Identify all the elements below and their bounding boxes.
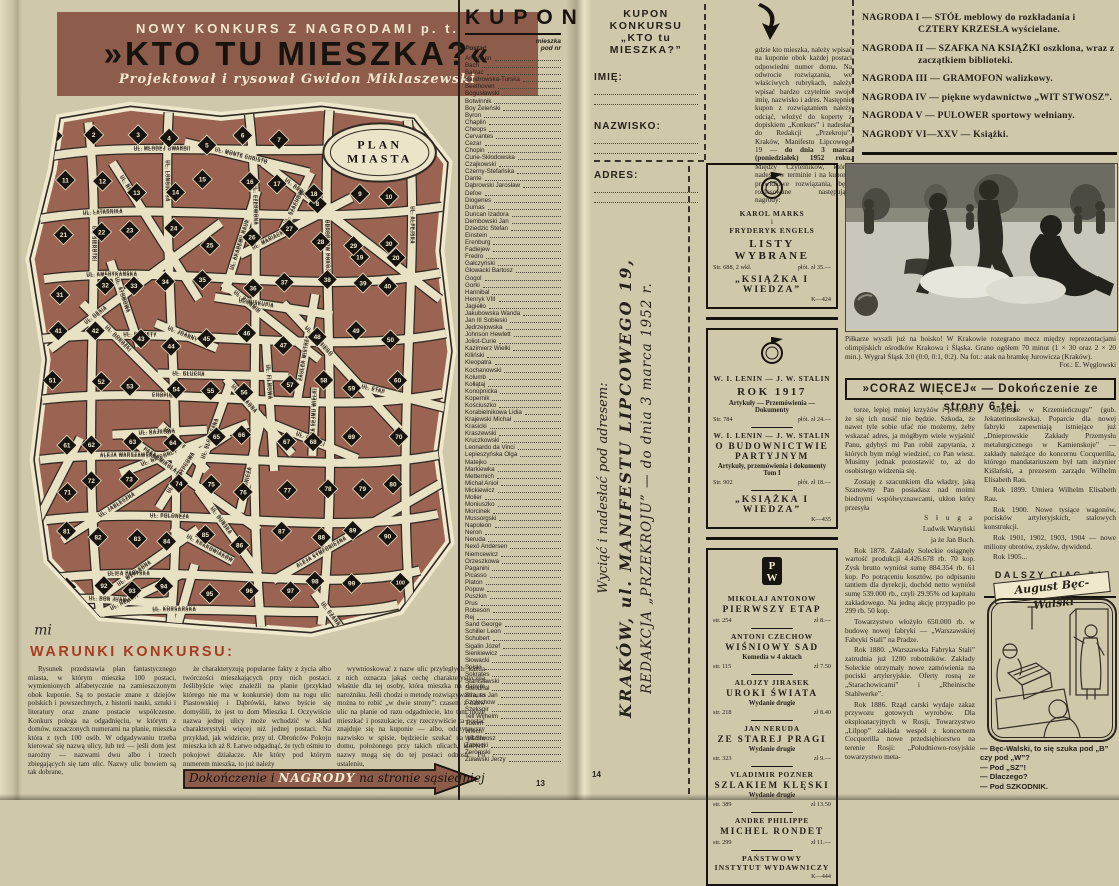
coupon-row: Moniuszko — [465, 501, 563, 508]
ad-meta-right: zł 11.— — [811, 839, 831, 846]
dot-leader — [499, 435, 561, 436]
dot-leader — [502, 683, 561, 684]
map-label-line1: PLAN — [357, 137, 402, 151]
coupon-name: Prus — [465, 600, 478, 607]
coupon-name: Curie-Skłodowska — [465, 154, 515, 161]
cut-line-vertical-right — [852, 0, 854, 162]
coupon-row: Kleopatra — [465, 359, 563, 366]
coupon-row: Johnson Hewlett — [465, 331, 563, 338]
ad-line: VLADIMIR POZNER — [713, 770, 831, 779]
ad-sub: Artykuły — Przemówienia — Dokumenty — [713, 400, 831, 414]
coupon-name: Defoe — [465, 190, 482, 197]
coupon-name: Johnson Hewlett — [465, 331, 511, 338]
comic-panel-inner — [991, 602, 1113, 738]
dot-leader — [481, 605, 561, 606]
ad-footer2: PAŃSTWOWY — [713, 854, 831, 863]
dot-leader — [485, 733, 561, 734]
prize-item: NAGRODA I — STÓŁ meblowy do rozkładania … — [862, 12, 1117, 36]
dot-leader — [498, 471, 561, 472]
coupon-row: Puszkin — [465, 593, 563, 600]
coupon-name: Stendhal — [465, 685, 489, 692]
contest-instructions: gdzie kto mieszka, należy wpisać na kupo… — [755, 46, 852, 164]
dot-leader — [512, 216, 561, 217]
house-number: 83 — [134, 536, 142, 543]
prize-item: NAGRODY VI—XXV — Książki. — [862, 129, 1117, 141]
street-name-label: UL. GŁUCHA — [172, 371, 205, 377]
coupon-form-title-1: KUPON KONKURSU — [594, 8, 698, 32]
dot-leader — [484, 117, 561, 118]
coupon-row: Dziedzic Stefan — [465, 225, 563, 232]
street-name-label: UL. MŁODEJ GWARDII — [134, 146, 191, 151]
prize-list: NAGRODA I — STÓŁ meblowy do rozkładania … — [862, 12, 1117, 147]
article-paragraph: Towarzystwo włożyło 650.000 rb. w budowę… — [845, 618, 975, 644]
dot-leader — [492, 690, 561, 691]
dot-leader — [487, 74, 561, 75]
coupon-name: Czerny-Stefańska — [465, 168, 514, 175]
house-number: 8 — [316, 201, 320, 208]
dot-leader — [485, 280, 561, 281]
coupon-title-rule — [465, 33, 561, 35]
scan-left-edge — [0, 0, 22, 800]
ad-small: i — [713, 218, 831, 226]
coupon-form-title-2: „KTO tu MIESZKA?” — [594, 32, 698, 56]
coupon-row: Hannibal — [465, 289, 563, 296]
ad-divider — [751, 850, 793, 851]
coupon-form-field: IMIĘ: — [594, 67, 698, 105]
coupon-row: Lepieszyńska Olga — [465, 451, 563, 458]
coupon-name: Nexö Andersen — [465, 543, 507, 550]
coupon-row: Chaplin — [465, 119, 563, 126]
dot-leader — [487, 591, 561, 592]
house-number: 51 — [49, 378, 57, 385]
coupon-name-list: AndersenBachBalzacBandrowska-TurskaBeeth… — [465, 55, 563, 763]
house-number: 82 — [94, 534, 102, 541]
prize-item: NAGRODA II — SZAFKA NA KSIĄŻKI oszklona,… — [862, 43, 1117, 67]
coupon-name: Strauss Jan — [465, 692, 498, 699]
house-number: 77 — [284, 487, 292, 494]
house-number: 28 — [317, 239, 325, 246]
dot-leader — [498, 265, 561, 266]
house-number: 12 — [99, 178, 107, 185]
coupon-row: Picasso — [465, 572, 563, 579]
dot-leader — [501, 556, 561, 557]
ad-divider — [751, 720, 793, 721]
house-number: 75 — [208, 482, 216, 489]
dot-leader — [489, 124, 561, 125]
coupon-name: Paganini — [465, 565, 489, 572]
coupon-row: Sand George — [465, 621, 563, 628]
coupon-row: Defoe — [465, 189, 563, 196]
house-number: 71 — [64, 490, 72, 497]
coupon-row: Kościuszko — [465, 402, 563, 409]
ad-title2: SZLAKIEM KLĘSKI — [713, 781, 831, 791]
coupon-row: Żeromski — [465, 749, 563, 756]
house-number: 53 — [126, 384, 134, 391]
coupon-name: Krasicki — [465, 423, 487, 430]
coupon-row: Solski — [465, 664, 563, 671]
house-number: 48 — [314, 334, 322, 341]
house-number: 47 — [280, 343, 288, 350]
dot-leader — [493, 640, 561, 641]
coupon-name: Morcinek — [465, 508, 490, 515]
coupon-name: Cheops — [465, 126, 486, 133]
dot-leader — [490, 464, 561, 465]
house-number: 60 — [394, 378, 402, 385]
ad-title2: MICHEL RONDET — [713, 827, 831, 837]
ad-line: W. I. LENIN — J. W. STALIN — [713, 374, 831, 383]
coupon-row: Orzeszkowa — [465, 558, 563, 565]
ad-meta-right: zł 7.50 — [814, 663, 831, 670]
coupon-row: Dante — [465, 175, 563, 182]
house-number: 94 — [160, 583, 168, 590]
coupon-title: KUPON — [465, 6, 567, 30]
dot-leader — [511, 230, 561, 231]
coupon-row: Prus — [465, 600, 563, 607]
house-number: 14 — [172, 190, 180, 197]
house-number: 93 — [128, 588, 136, 595]
dot-leader — [518, 159, 561, 160]
house-number: 35 — [199, 277, 207, 284]
house-number: 76 — [240, 489, 248, 496]
house-number: 52 — [98, 379, 106, 386]
dot-leader — [501, 718, 561, 719]
coupon-row: Sokrates — [465, 671, 563, 678]
ad-meta-left: str. 218 — [713, 709, 732, 716]
coupon-row: Rej — [465, 614, 563, 621]
street-name: UL. ALPEJSKA — [409, 206, 414, 244]
ad-divider — [751, 628, 793, 629]
ad-footer: „KSIĄŻKA I WIEDZA” — [713, 275, 831, 295]
house-number: 24 — [170, 225, 178, 232]
coupon-name: Lepieszyńska Olga — [465, 451, 517, 458]
house-number: 59 — [348, 385, 356, 392]
coupon-form-dotline — [594, 144, 698, 154]
coupon-row: Zabłocki — [465, 742, 563, 749]
coupon-col-number-l1: mieszka — [536, 38, 561, 45]
house-number: 63 — [129, 439, 137, 446]
coupon-row: Szekspir — [465, 706, 563, 713]
coupon-name: Kopernik — [465, 395, 489, 402]
house-number: 43 — [137, 336, 145, 343]
instructions-pre: gdzie kto mieszka, należy wpisać na kupo… — [755, 46, 852, 154]
ad-meta-right: płót. zł 18.— — [798, 479, 831, 486]
ad-meta-right: zł 8.— — [814, 617, 831, 624]
article-paragraph: Zostaję z szacunkiem dla władzy, jaką Sz… — [845, 478, 975, 513]
coupon-name: Kołłątaj — [465, 381, 485, 388]
coupon-row: Michał Anioł — [465, 480, 563, 487]
continued-banner-text: Dokończenie i NAGRODY na stronie sąsiedn… — [189, 771, 437, 785]
ad-title: ROK 1917 — [713, 386, 831, 398]
banner-pre: Dokończenie i — [189, 771, 278, 785]
photo-caption-text: Piłkarze wyszli już na boisko! W Krakowi… — [845, 334, 1116, 361]
ad-meta-row: str. 389zł 13.50 — [713, 801, 831, 808]
coupon-form-dotline — [594, 95, 698, 105]
dot-leader — [520, 456, 561, 457]
ad-line: W. I. LENIN — J. W. STALIN — [713, 431, 831, 440]
coupon-name: Bogusławski — [465, 90, 499, 97]
coupon-name: Schubert — [465, 635, 490, 642]
book-ad-piw-books: PWMIKOŁAJ ANTONOWPIERWSZY ETAPstr. 254zł… — [706, 548, 838, 886]
dot-leader — [477, 619, 561, 620]
coupon-name: Gorki — [465, 282, 480, 289]
street-name: UL. MŁODEJ GWARDII — [134, 146, 191, 151]
coupon-name: Boy Żeleński — [465, 105, 500, 112]
dot-leader — [493, 612, 561, 613]
coupon-row: Niemcewicz — [465, 550, 563, 557]
coupon-row: Kochanowski — [465, 366, 563, 373]
football-photo — [845, 163, 1118, 332]
dot-leader — [498, 704, 561, 705]
house-number: 90 — [384, 534, 392, 541]
dot-leader — [483, 287, 561, 288]
article-paragraph: Rok 1886. Rząd carski wydaje zakaz przyw… — [845, 701, 975, 762]
coupon-form-field: NAZWISKO: — [594, 116, 698, 154]
coupon-name: Solski — [465, 664, 482, 671]
dot-leader — [502, 563, 561, 564]
coupon-name: Andersen — [465, 55, 492, 62]
coupon-name: Hannibal — [465, 289, 489, 296]
house-number: 86 — [236, 543, 244, 550]
dot-leader — [485, 180, 561, 181]
coupon-row: Duncan Izadora — [465, 211, 563, 218]
dot-leader — [501, 697, 561, 698]
cut-line-horizontal — [594, 160, 704, 162]
dot-leader — [499, 740, 561, 741]
dot-leader — [503, 648, 561, 649]
house-number: 70 — [395, 434, 403, 441]
ad-code: K—435 — [713, 516, 831, 523]
ad-divider — [751, 766, 793, 767]
coupon-row: Schiller Leon — [465, 628, 563, 635]
coupon-name: Jakubowska Wanda — [465, 310, 520, 317]
coupon-name: Dante — [465, 175, 482, 182]
coupon-row: Dąbrowski Jarosław — [465, 182, 563, 189]
coupon-row: Diogenes — [465, 197, 563, 204]
comic-illustration — [992, 603, 1112, 737]
coupon-name: Słowacki — [465, 657, 489, 664]
coupon-row: Krasicki — [465, 423, 563, 430]
coupon-row: Kolumb — [465, 374, 563, 381]
coupon-form-dotline — [594, 134, 698, 144]
house-number: 57 — [286, 382, 294, 389]
cut-note-line3: REDAKCJA „PRZEKROJU” — do dnia 3 marca 1… — [639, 168, 655, 808]
ad-separator — [706, 317, 838, 320]
book-ad-kiw-lenin-stalin: W. I. LENIN — J. W. STALINROK 1917Artyku… — [706, 328, 838, 529]
house-number: 26 — [248, 235, 256, 242]
kiw-badge-icon — [713, 336, 831, 371]
dot-leader — [499, 166, 561, 167]
coupon-name: Kolumb — [465, 374, 486, 381]
ad-meta-right: zł 8.40 — [814, 709, 831, 716]
coupon-row: Cheops — [465, 126, 563, 133]
coupon-name: Jagiełło — [465, 303, 486, 310]
house-number: 25 — [206, 243, 214, 250]
rules-text-3: wywnioskować z nazw ulic przyległych: ka… — [337, 665, 485, 768]
map-label-line2: MIASTA — [347, 152, 412, 166]
house-number: 98 — [311, 578, 319, 585]
coupon-name: Leonardo da Vinci — [465, 444, 515, 451]
piw-monogram-icon: PW — [713, 556, 831, 591]
dot-leader — [503, 110, 561, 111]
coupon-row: Szołochow — [465, 699, 563, 706]
prize-item: NAGRODA III — GRAMOFON walizkowy. — [862, 73, 1117, 85]
house-number: 10 — [385, 194, 393, 201]
map-label-group: PLANMIASTA — [323, 123, 436, 181]
ad-sub: Artykuły, przemówienia i dokumenty — [713, 463, 831, 470]
signature-line: ja że Jan Buch. — [845, 536, 975, 545]
house-number: 64 — [169, 440, 177, 447]
coupon-name: Wit Stwosz — [465, 735, 496, 742]
coupon-row: Erenburg — [465, 239, 563, 246]
coupon-row: Czajkowski — [465, 161, 563, 168]
article-paragraph: torze, lepiej mniej krzyżów i pewność, ż… — [845, 406, 975, 476]
house-number: 67 — [283, 439, 291, 446]
coupon-name: Szołochow — [465, 699, 495, 706]
city-map-illustration: UL. MŁODEJ GWARDIIUL. MŁODEJ GWARDIIUL. … — [20, 100, 460, 643]
house-number: 41 — [55, 328, 63, 335]
house-number: 34 — [162, 279, 170, 286]
dot-leader — [499, 520, 561, 521]
coupon-row: Paganini — [465, 565, 563, 572]
article-paragraph: Rok 1905... — [984, 553, 1116, 562]
dot-leader — [485, 145, 561, 146]
article-paragraph: Rok 1900. Nowe tysiące wagonów, pocisków… — [984, 506, 1116, 532]
house-number: 39 — [359, 280, 367, 287]
scan-bottom-shadow — [0, 794, 1119, 800]
ad-line: ALOJZY JIRASEK — [713, 678, 831, 687]
street-name-label: UL. ALPEJSKA — [409, 206, 414, 244]
coupon-name: Chaplin — [465, 119, 486, 126]
dot-leader — [496, 138, 561, 139]
ad-meta-row: str. 299zł 11.— — [713, 839, 831, 846]
ad-meta-right: zł 9.— — [814, 755, 831, 762]
house-number: 11 — [62, 177, 69, 184]
comic-caption-line: — Pod „SZ”! — [980, 763, 1118, 772]
ad-separator — [706, 537, 838, 540]
house-number: 13 — [133, 190, 141, 197]
dot-leader — [506, 329, 562, 330]
coupon-row: Konopnicka — [465, 388, 563, 395]
house-number: 37 — [281, 280, 289, 287]
coupon-name: Matejko — [465, 459, 487, 466]
coupon-name: Gałczyński — [465, 260, 495, 267]
house-number: 36 — [249, 285, 257, 292]
ad-line: JAN NERUDA — [713, 724, 831, 733]
coupon-row: Byron — [465, 112, 563, 119]
ad-sub: Komedia w 4 aktach — [713, 654, 831, 661]
article-paragraph: Rok 1880. „Warszawska Fabryka Stali” zat… — [845, 646, 975, 698]
coupon-name: Stanisławski — [465, 678, 499, 685]
coupon-name: Kochanowski — [465, 367, 501, 374]
coupon-name: Krajewski Michał — [465, 416, 511, 423]
ad-line: FRYDERYK ENGELS — [713, 226, 831, 235]
dot-leader — [490, 598, 561, 599]
coupon-name: Czajkowski — [465, 161, 496, 168]
coupon-name: Tell Wilhelm — [465, 713, 498, 720]
house-number: 88 — [318, 535, 326, 542]
comic-caption-line: — Pod SZKODNIK. — [980, 782, 1118, 791]
coupon-form-field-label: NAZWISKO: — [594, 121, 661, 132]
house-number: 69 — [348, 434, 356, 441]
coupon-row: Sienkiewicz — [465, 650, 563, 657]
ad-sub: Wydanie drugie — [713, 700, 831, 707]
coupon-name: Sienkiewicz — [465, 650, 497, 657]
coupon-form-dotline — [594, 85, 698, 95]
house-number: 97 — [287, 588, 295, 595]
ad-meta-row: Str. 902płót. zł 18.— — [713, 479, 831, 486]
ad-meta-row: Str. 784płót. zł 24.— — [713, 416, 831, 423]
coupon-name: Bach — [465, 62, 479, 69]
house-number: 58 — [320, 377, 328, 384]
house-number: 49 — [352, 328, 360, 335]
dot-leader — [504, 633, 561, 634]
coupon-col-number-l2: pod nr — [541, 45, 561, 52]
coupon-row: Mickiewicz — [465, 487, 563, 494]
dot-leader — [497, 478, 561, 479]
ad-meta-right: płót. zł 24.— — [798, 416, 831, 423]
house-number: 9 — [358, 191, 362, 198]
ad-meta-left: Str. 784 — [713, 416, 733, 423]
coupon-row: Popow — [465, 586, 563, 593]
coupon-name: Kościuszko — [465, 402, 496, 409]
coupon-row: Żuławski Jerzy — [465, 756, 563, 763]
coupon-name: Korabielnikowa Lidia — [465, 409, 522, 416]
coupon-name: Kraszewski — [465, 430, 496, 437]
coupon-name: Niemcewicz — [465, 551, 498, 558]
dot-leader — [493, 513, 561, 514]
coupon-row: Dumas — [465, 204, 563, 211]
dot-leader — [510, 548, 561, 549]
coupon-row: Czerny-Stefańska — [465, 168, 563, 175]
dot-leader — [514, 336, 561, 337]
ad-meta-left: Str. 902 — [713, 479, 733, 486]
coupon-row: Korabielnikowa Lidia — [465, 409, 563, 416]
cut-note-line1: Wyciąć i nadesłać pod adresem: — [596, 168, 611, 808]
down-arrow-icon — [756, 0, 786, 42]
coupon-row: Krajewski Michał — [465, 416, 563, 423]
dot-leader — [494, 202, 561, 203]
coupon-row: Botwinnik — [465, 97, 563, 104]
prize-list-rule — [862, 152, 1117, 155]
article-column-1: torze, lepiej mniej krzyżów i pewność, ż… — [845, 406, 975, 768]
coupon-form-field-label: IMIĘ: — [594, 72, 623, 83]
house-number: 42 — [92, 328, 100, 335]
ad-meta-left: str. 323 — [713, 755, 732, 762]
dot-leader — [500, 655, 561, 656]
coupon-row: Słowacki — [465, 657, 563, 664]
football-photo-illustration — [846, 164, 1115, 329]
coupon-name: Orzeszkowa — [465, 558, 499, 565]
ad-title: LISTY WYBRANE — [713, 238, 831, 262]
coupon-name: Napoleon — [465, 522, 492, 529]
dot-leader — [523, 187, 561, 188]
coupon-row: Einstein — [465, 232, 563, 239]
coupon-row: Kopernik — [465, 395, 563, 402]
coupon-name: Tuwim — [465, 720, 483, 727]
coupon-name: Kruczkowski — [465, 437, 499, 444]
house-number: 80 — [389, 482, 397, 489]
dot-leader — [514, 421, 561, 422]
coupon-name: Duncan Izadora — [465, 211, 509, 218]
ad-title2: PIERWSZY ETAP — [713, 605, 831, 615]
dot-leader — [492, 711, 561, 712]
coupon-row: Cezar — [465, 140, 563, 147]
coupon-name: Picasso — [465, 572, 487, 579]
house-number: 73 — [126, 477, 134, 484]
house-number: 55 — [207, 388, 215, 395]
dot-leader — [499, 407, 561, 408]
ad-meta-right: płót. zł 35.— — [798, 264, 831, 271]
